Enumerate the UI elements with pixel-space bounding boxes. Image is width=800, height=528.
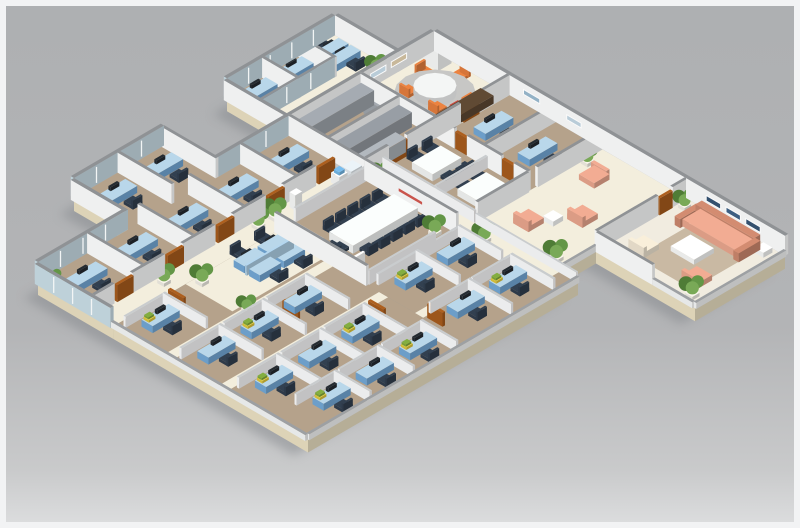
round-table <box>413 73 456 106</box>
office-floorplan-3d-render <box>6 6 794 522</box>
screenshot-frame <box>0 0 800 528</box>
